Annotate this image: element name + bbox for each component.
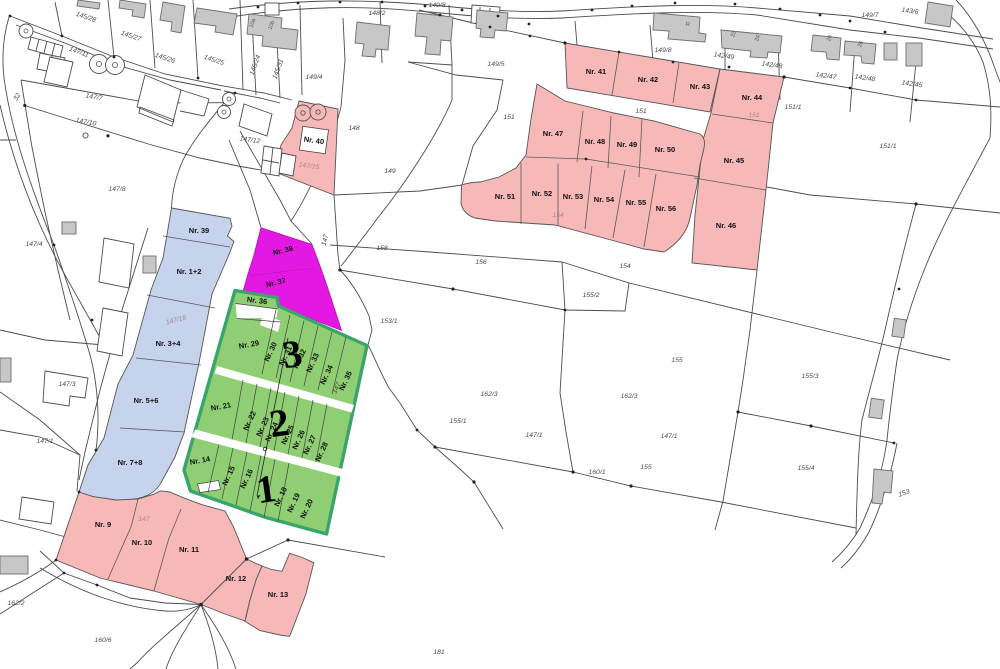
- svg-text:Nr. 41: Nr. 41: [586, 67, 606, 76]
- svg-text:Nr. 46: Nr. 46: [716, 221, 736, 230]
- svg-text:Nr. 47: Nr. 47: [543, 129, 563, 138]
- svg-text:149/8: 149/8: [654, 47, 671, 54]
- svg-text:Nr. 44: Nr. 44: [742, 93, 763, 102]
- svg-text:Nr. 9: Nr. 9: [95, 520, 111, 529]
- svg-text:149: 149: [384, 168, 396, 175]
- svg-text:Nr. 13: Nr. 13: [268, 590, 288, 599]
- svg-text:Nr. 51: Nr. 51: [495, 192, 515, 201]
- svg-text:151/1: 151/1: [784, 104, 801, 111]
- svg-text:155/3: 155/3: [801, 373, 818, 380]
- svg-text:153/1: 153/1: [380, 318, 397, 325]
- svg-text:Nr. 54: Nr. 54: [594, 195, 615, 204]
- svg-text:158: 158: [376, 245, 388, 252]
- svg-text:Nr. 5+6: Nr. 5+6: [134, 396, 159, 405]
- svg-text:Nr. 11: Nr. 11: [179, 545, 199, 554]
- svg-text:162/3: 162/3: [480, 391, 497, 398]
- svg-text:Nr. 39: Nr. 39: [189, 226, 209, 235]
- svg-text:155/2: 155/2: [582, 292, 599, 299]
- svg-text:155: 155: [671, 357, 683, 364]
- svg-text:Nr. 50: Nr. 50: [655, 145, 675, 154]
- svg-text:147/8: 147/8: [108, 186, 125, 193]
- svg-text:149/5: 149/5: [487, 61, 504, 68]
- svg-text:Nr. 1+2: Nr. 1+2: [177, 267, 202, 276]
- svg-text:149/7: 149/7: [861, 12, 878, 19]
- svg-text:147/1: 147/1: [660, 433, 677, 440]
- svg-text:154: 154: [619, 263, 631, 270]
- svg-text:160/1: 160/1: [588, 469, 605, 476]
- svg-text:Nr. 42: Nr. 42: [638, 75, 658, 84]
- svg-text:Nr. 3+4: Nr. 3+4: [156, 339, 182, 348]
- svg-text:162/2: 162/2: [7, 600, 24, 607]
- svg-text:R: R: [686, 22, 690, 28]
- svg-text:149/4: 149/4: [305, 74, 322, 81]
- svg-text:162/3: 162/3: [620, 393, 637, 400]
- svg-text:Nr. 43: Nr. 43: [690, 82, 710, 91]
- svg-text:151: 151: [635, 108, 647, 115]
- svg-text:Nr. 10: Nr. 10: [132, 538, 152, 547]
- svg-text:147/3: 147/3: [58, 381, 75, 388]
- svg-text:181: 181: [433, 649, 445, 656]
- svg-text:147: 147: [138, 516, 150, 523]
- svg-text:147/1: 147/1: [525, 432, 542, 439]
- svg-text:Nr. 45: Nr. 45: [724, 156, 744, 165]
- svg-text:155: 155: [640, 464, 652, 471]
- svg-text:147/1: 147/1: [36, 438, 53, 445]
- svg-text:149/8: 149/8: [428, 2, 445, 9]
- svg-text:Nr. 48: Nr. 48: [585, 137, 605, 146]
- svg-text:155/4: 155/4: [797, 465, 814, 472]
- svg-text:Nr. 56: Nr. 56: [656, 204, 676, 213]
- svg-text:160/6: 160/6: [94, 637, 111, 644]
- svg-text:155/1: 155/1: [449, 418, 466, 425]
- svg-text:Nr. 12: Nr. 12: [226, 574, 246, 583]
- svg-text:151/1: 151/1: [879, 143, 896, 150]
- svg-text:Nr. 52: Nr. 52: [532, 189, 552, 198]
- svg-text:147/4: 147/4: [25, 241, 42, 248]
- svg-text:151: 151: [748, 112, 760, 119]
- svg-text:156: 156: [475, 259, 487, 266]
- svg-text:154: 154: [552, 212, 564, 219]
- svg-text:Nr. 55: Nr. 55: [626, 198, 646, 207]
- svg-text:Nr. 49: Nr. 49: [617, 140, 637, 149]
- svg-text:151: 151: [503, 114, 515, 121]
- svg-text:Nr. 53: Nr. 53: [563, 192, 583, 201]
- svg-text:148/2: 148/2: [368, 10, 385, 17]
- svg-text:Nr. 7+8: Nr. 7+8: [118, 458, 143, 467]
- svg-text:148: 148: [348, 125, 360, 132]
